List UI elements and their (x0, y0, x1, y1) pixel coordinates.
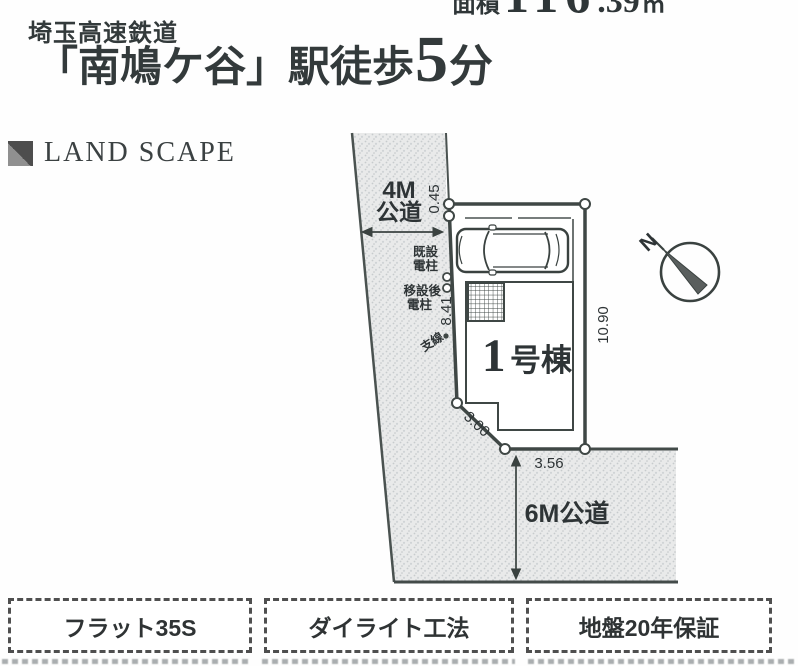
section-title: LAND SCAPE (44, 137, 236, 169)
dim-east-edge: 10.90 (595, 306, 612, 344)
dim-offset-top: 0.45 (426, 184, 443, 213)
site-plan-diagram: N 4M 公道 6M公道 1 号棟 0.45 8.41 10.90 3.00 3… (340, 125, 798, 595)
walk-minutes-unit: 分 (449, 30, 493, 94)
badge-flat35s-label: フラット35S (64, 609, 197, 643)
relocated-pole-marker-1 (443, 273, 451, 281)
dim-west-edge: 8.41 (438, 296, 455, 325)
badge-dailite: ダイライト工法 (264, 598, 514, 653)
existing-pole-marker (444, 211, 454, 221)
west-road-label-line2: 公道 (376, 199, 422, 225)
badge-ground-warranty-label: 地盤20年保証 (579, 609, 720, 643)
relocated-pole-marker-2 (443, 284, 451, 292)
section-bullet-icon (8, 141, 33, 166)
station-name-text: 「南鳩ケ谷」駅徒歩 (36, 33, 414, 94)
clipped-footnote-fragment (528, 659, 794, 664)
clipped-footnote-fragment (262, 659, 515, 664)
existing-pole-label-l1: 既設 (413, 244, 439, 259)
badge-ground-warranty: 地盤20年保証 (526, 598, 772, 653)
west-road-right-edge (446, 133, 449, 204)
area-decimal: .39 (597, 0, 640, 21)
compass-n-label: N (635, 229, 662, 256)
south-road-label: 6M公道 (525, 499, 610, 528)
existing-pole-label-l2: 電柱 (413, 258, 439, 273)
relocated-pole-label-l1: 移設後 (403, 283, 441, 298)
entrance-hatch (468, 283, 504, 321)
flyer-page: 埼玉高速鉄道 「南鳩ケ谷」駅徒歩 5 分 面積 116 .39 ㎡ LAND S… (0, 0, 798, 666)
dim-south-edge: 3.56 (534, 455, 563, 472)
clipped-footnote-fragment (2, 659, 252, 664)
walk-minutes-value: 5 (415, 30, 448, 89)
area-heading-clipped: 面積 116 .39 ㎡ (452, 0, 666, 24)
relocated-pole-label-l2: 電柱 (407, 297, 433, 312)
guy-wire-anchor-dot (443, 333, 448, 338)
landscape-section-header: LAND SCAPE (8, 137, 236, 169)
area-unit: ㎡ (642, 0, 666, 19)
badge-dailite-label: ダイライト工法 (309, 609, 470, 643)
north-compass: N (635, 229, 719, 301)
badge-flat35s: フラット35S (8, 598, 252, 653)
station-walk-heading: 「南鳩ケ谷」駅徒歩 5 分 (36, 30, 493, 94)
area-label: 面積 (452, 0, 500, 19)
area-integer: 116 (504, 0, 597, 24)
car-icon (457, 225, 568, 275)
